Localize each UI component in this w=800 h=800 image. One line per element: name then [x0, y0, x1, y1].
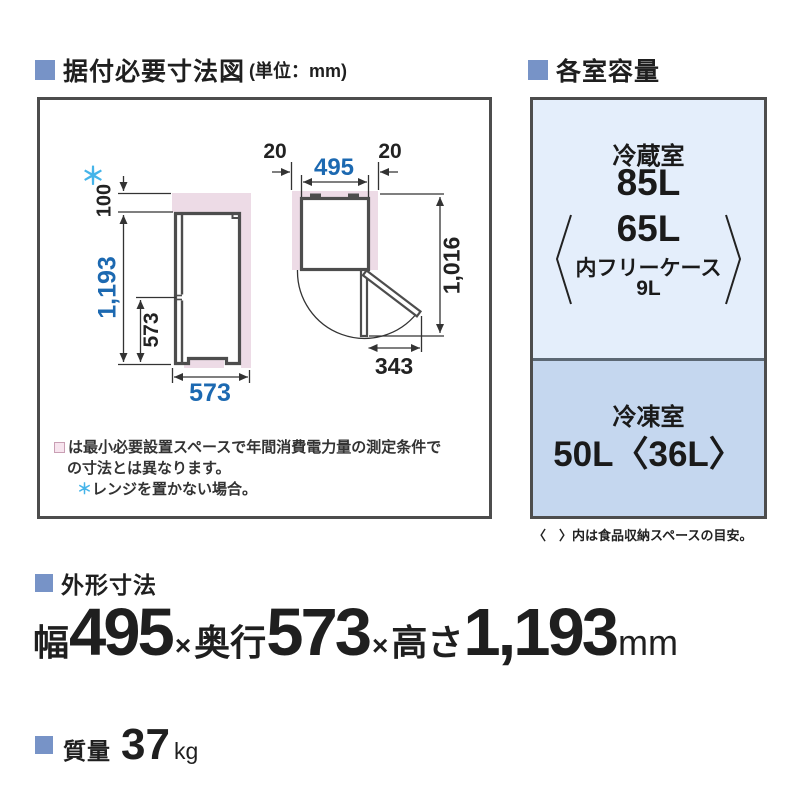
fridge-inner-value: 65L — [533, 208, 764, 250]
width-label: 幅 — [33, 614, 69, 666]
dim-width: 495 — [299, 154, 369, 182]
outer-dimensions-line: 幅 495 × 奥行 573 × 高さ 1,193 mm — [33, 599, 678, 666]
dim-door-open-depth: 1,016 — [439, 231, 466, 301]
section-bullet-icon — [35, 574, 53, 592]
weight-value: 37 — [121, 723, 170, 767]
install-section-header: 据付必要寸法図 (単位：mm) — [35, 52, 347, 88]
capacity-footnote: 〈 〉内は食品収納スペースの目安。 — [533, 525, 752, 544]
install-unit-note: (単位：mm) — [249, 57, 347, 83]
diagram-note-line3: ＊レンジを置かない場合。 — [77, 478, 257, 499]
door-swing — [297, 270, 420, 338]
section-bullet-icon — [35, 736, 53, 754]
dim-lower-height: 573 — [140, 306, 164, 354]
top-view-fridge — [292, 191, 378, 270]
fridge-value: 85L — [533, 162, 764, 204]
fridge-inner-sub: 9L — [533, 277, 764, 301]
hinge-mark-icon — [310, 194, 321, 200]
capacity-title: 各室容量 — [556, 52, 660, 88]
install-title: 据付必要寸法図 — [63, 52, 245, 88]
weight-line: 質量 37 kg — [35, 723, 198, 767]
depth-label: 奥行 — [194, 614, 266, 666]
weight-title: 質量 — [63, 732, 111, 766]
section-bullet-icon — [528, 60, 548, 80]
door-open-45 — [363, 271, 421, 317]
dim-left-clearance: 20 — [257, 140, 293, 164]
height-value: 1,193 — [463, 599, 616, 666]
kg-unit: kg — [174, 738, 198, 765]
dim-right-clearance: 20 — [372, 140, 408, 164]
dim-depth: 573 — [175, 379, 245, 408]
pink-space-legend-icon — [54, 442, 65, 453]
mm-unit: mm — [618, 622, 678, 664]
freezer-value: 50L〈36L〉 — [533, 426, 764, 477]
dim-top-clearance: 100 — [94, 179, 117, 223]
dim-door-protrusion: 343 — [364, 353, 424, 380]
width-value: 495 — [69, 599, 172, 666]
diagram-note-line2: の寸法とは異なります。 — [67, 457, 231, 478]
asterisk-mark: ＊ — [77, 481, 92, 498]
hinge-mark-icon — [348, 194, 359, 200]
door-open-90 — [361, 270, 367, 336]
times-separator: × — [175, 630, 191, 662]
depth-value: 573 — [266, 599, 369, 666]
capacity-panel: 冷蔵室 85L 65L 内フリーケース 9L 冷凍室 50L〈36L〉 — [530, 97, 767, 519]
dim-total-height: 1,193 — [94, 252, 123, 324]
section-bullet-icon — [35, 60, 55, 80]
times-separator: × — [372, 630, 388, 662]
side-view-fridge — [175, 214, 240, 364]
capacity-section-header: 各室容量 — [528, 52, 660, 88]
diagram-note-line1: は最小必要設置スペースで年間消費電力量の測定条件で — [54, 436, 441, 457]
height-label: 高さ — [391, 614, 463, 666]
